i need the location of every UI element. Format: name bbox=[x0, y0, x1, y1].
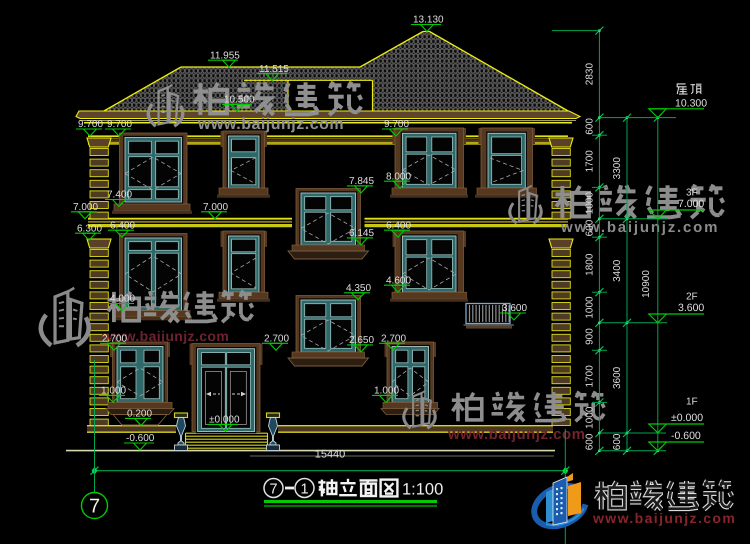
svg-text:600: 600 bbox=[584, 118, 595, 135]
svg-text:1000: 1000 bbox=[584, 296, 595, 319]
svg-text:3F: 3F bbox=[686, 188, 698, 199]
svg-text:2830: 2830 bbox=[584, 63, 595, 86]
svg-text:www.baijunjz.com: www.baijunjz.com bbox=[197, 116, 344, 133]
svg-text:7.000: 7.000 bbox=[678, 198, 704, 210]
svg-text:www.baijunjz.com: www.baijunjz.com bbox=[592, 510, 736, 526]
svg-text:3.600: 3.600 bbox=[678, 302, 704, 314]
svg-text:1800: 1800 bbox=[584, 253, 595, 276]
svg-text:600: 600 bbox=[584, 433, 595, 450]
svg-text:900: 900 bbox=[584, 328, 595, 345]
svg-text:3400: 3400 bbox=[612, 259, 623, 282]
svg-text:-0.600: -0.600 bbox=[671, 430, 701, 442]
svg-text:2F: 2F bbox=[686, 292, 698, 303]
svg-text:3300: 3300 bbox=[612, 157, 623, 180]
svg-text:15440: 15440 bbox=[315, 449, 346, 461]
svg-text:1000: 1000 bbox=[584, 192, 595, 215]
svg-text:www.baijunjz.com: www.baijunjz.com bbox=[447, 426, 585, 443]
svg-text:10900: 10900 bbox=[641, 270, 652, 298]
svg-text:1000: 1000 bbox=[584, 406, 595, 429]
svg-text:1F: 1F bbox=[686, 397, 698, 408]
svg-text:1700: 1700 bbox=[584, 150, 595, 173]
svg-text:600: 600 bbox=[584, 219, 595, 236]
svg-text:10.300: 10.300 bbox=[675, 98, 707, 110]
svg-text:3600: 3600 bbox=[612, 366, 623, 389]
svg-text:7: 7 bbox=[269, 482, 277, 498]
svg-text:600: 600 bbox=[612, 433, 623, 450]
svg-text:±0.000: ±0.000 bbox=[671, 412, 703, 424]
svg-text:1:100: 1:100 bbox=[402, 481, 443, 499]
svg-text:1: 1 bbox=[300, 482, 308, 498]
svg-text:1700: 1700 bbox=[584, 365, 595, 388]
svg-text:7: 7 bbox=[89, 496, 100, 518]
